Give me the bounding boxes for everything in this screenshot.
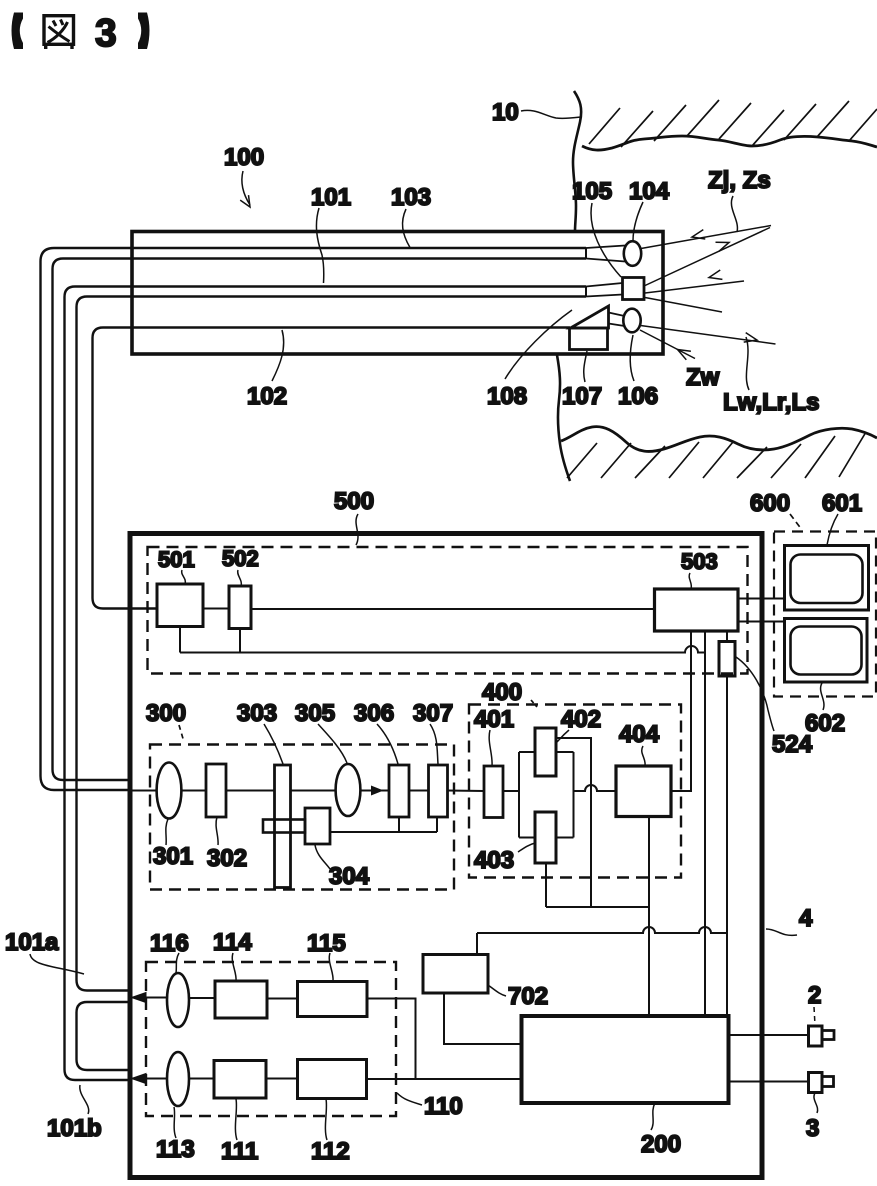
svg-text:105: 105 — [572, 178, 612, 205]
svg-text:103: 103 — [391, 184, 431, 211]
svg-text:104: 104 — [629, 178, 670, 205]
svg-text:111: 111 — [221, 1138, 258, 1165]
svg-text:500: 500 — [334, 488, 374, 515]
svg-text:400: 400 — [482, 679, 522, 706]
svg-text:114: 114 — [213, 929, 252, 956]
svg-text:404: 404 — [619, 721, 660, 748]
svg-text:101: 101 — [311, 184, 351, 211]
svg-text:100: 100 — [224, 144, 264, 171]
svg-text:300: 300 — [146, 700, 186, 727]
svg-text:3: 3 — [95, 12, 117, 55]
svg-text:2: 2 — [808, 982, 821, 1009]
svg-text:401: 401 — [474, 706, 514, 733]
svg-text:110: 110 — [424, 1093, 463, 1120]
svg-text:108: 108 — [487, 383, 527, 410]
svg-text:10: 10 — [492, 99, 519, 126]
svg-text:102: 102 — [247, 383, 287, 410]
svg-text:702: 702 — [508, 983, 548, 1010]
svg-text:101b: 101b — [47, 1115, 102, 1142]
svg-text:4: 4 — [799, 905, 813, 932]
svg-text:116: 116 — [150, 930, 189, 957]
svg-text:3: 3 — [806, 1115, 819, 1142]
svg-text:503: 503 — [681, 549, 718, 574]
svg-text:502: 502 — [222, 546, 259, 571]
svg-text:307: 307 — [413, 700, 453, 727]
svg-text:Zj, Zs: Zj, Zs — [708, 167, 771, 194]
svg-text:306: 306 — [354, 700, 394, 727]
svg-text:Zw: Zw — [686, 364, 720, 391]
svg-text:113: 113 — [156, 1136, 195, 1163]
svg-text:304: 304 — [329, 863, 370, 890]
svg-text:403: 403 — [474, 847, 514, 874]
svg-text:305: 305 — [295, 700, 335, 727]
svg-text:600: 600 — [750, 490, 790, 517]
svg-text:107: 107 — [562, 383, 602, 410]
svg-text:115: 115 — [307, 930, 346, 957]
svg-text:301: 301 — [153, 843, 193, 870]
svg-text:501: 501 — [158, 547, 195, 572]
svg-text:106: 106 — [618, 383, 658, 410]
svg-text:601: 601 — [822, 490, 862, 517]
svg-text:200: 200 — [641, 1131, 681, 1158]
svg-text:402: 402 — [561, 706, 601, 733]
svg-text:303: 303 — [237, 700, 277, 727]
svg-text:602: 602 — [805, 710, 845, 737]
svg-text:101a: 101a — [5, 929, 59, 956]
svg-text:302: 302 — [207, 845, 247, 872]
svg-text:112: 112 — [311, 1138, 350, 1165]
svg-text:Lw,Lr,Ls: Lw,Lr,Ls — [723, 389, 819, 416]
